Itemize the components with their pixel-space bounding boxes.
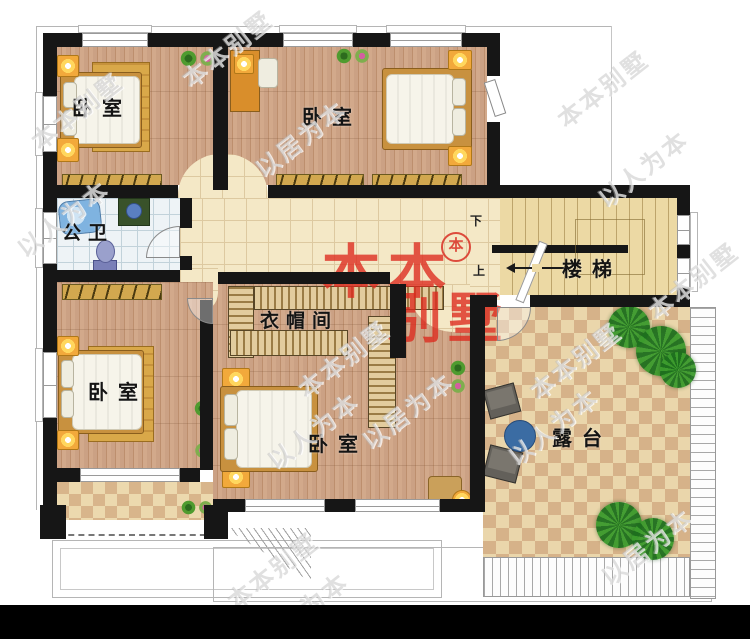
pillow (61, 390, 74, 418)
terrace-table (504, 420, 536, 452)
window-sill (35, 208, 43, 268)
exterior-outline (611, 26, 612, 188)
room-label-closet: 衣帽间 (260, 306, 338, 333)
plant-icon (450, 360, 466, 376)
floor-plan: 本本 别墅 本 卧室 卧室 公卫 楼 (0, 0, 750, 639)
window (43, 96, 57, 152)
window (80, 468, 180, 482)
window-sill (78, 25, 152, 33)
window-sill (35, 92, 43, 156)
nightstand-lamp (57, 336, 79, 356)
plant-icon (181, 500, 196, 515)
wall (487, 185, 690, 198)
room-label-bedroom-top-left: 卧室 (72, 92, 132, 121)
room-label-terrace: 露台 (552, 422, 612, 451)
window-sill (690, 212, 698, 292)
room-label-bedroom-top-right: 卧室 (302, 101, 362, 130)
window-sill (279, 25, 357, 33)
room-label-bedroom-bottom-middle: 卧室 (308, 428, 368, 457)
flower-icon (354, 48, 370, 64)
potted-palm (660, 352, 696, 388)
bay-window-band (62, 284, 162, 300)
window-sill (35, 348, 43, 422)
nightstand-lamp (448, 146, 472, 166)
caption-bar: 本图编号:A001 版权所有,盗图必究 （湘作登字2016-L-2015） 18… (0, 605, 750, 639)
stairs-arrow-dash-gap (532, 264, 542, 272)
nightstand-lamp (57, 430, 79, 450)
pillow (224, 428, 238, 460)
balcony-post (40, 505, 66, 539)
wall (470, 307, 485, 512)
pillow (61, 360, 74, 388)
window (390, 33, 462, 47)
pillow (224, 394, 238, 426)
stairs-down-label: 下 (470, 212, 482, 229)
dresser-lamp (234, 54, 254, 74)
potted-palm (632, 518, 674, 560)
window (43, 212, 57, 264)
stairs-up-label: 上 (473, 262, 485, 279)
nightstand-lamp (57, 55, 79, 77)
stairs-arrowhead-icon (506, 263, 515, 273)
sink (126, 203, 142, 219)
window (43, 352, 57, 418)
watermark-text: 本本别墅 (549, 40, 656, 134)
room-label-bathroom: 公卫 (62, 218, 114, 245)
wall (43, 270, 180, 282)
balcony-dashed-line (48, 534, 216, 536)
seat (258, 58, 278, 88)
brand-stamp-icon: 本 (441, 232, 471, 262)
wall (213, 47, 228, 190)
plant-icon (336, 48, 352, 64)
bed-duvet (236, 390, 312, 468)
wall (180, 198, 192, 228)
window-sill (386, 25, 466, 33)
stamp-char: 本 (448, 236, 463, 254)
flower-icon (450, 378, 466, 394)
wall (180, 256, 192, 270)
nightstand-lamp (448, 50, 472, 70)
pillow (452, 108, 466, 136)
window (82, 33, 148, 47)
wall (200, 300, 213, 470)
wall (470, 295, 497, 307)
window (677, 258, 690, 288)
window (283, 33, 353, 47)
plant-icon (180, 50, 197, 67)
pillow (452, 78, 466, 106)
terrace-bottom-railing (483, 557, 690, 597)
wall (390, 284, 406, 358)
wall (57, 185, 178, 198)
balcony-post (204, 505, 228, 539)
wall (218, 272, 390, 284)
window (677, 215, 690, 245)
wall (487, 47, 500, 198)
wall (530, 295, 690, 307)
wardrobe (230, 330, 348, 356)
window (245, 499, 325, 512)
room-label-stairs: 楼梯 (562, 253, 622, 282)
room-label-bedroom-bottom-left: 卧室 (88, 376, 148, 405)
terrace-right-railing (690, 307, 716, 599)
nightstand-lamp (57, 138, 79, 162)
window (355, 499, 440, 512)
bed-duvet (386, 74, 454, 144)
wall (268, 185, 487, 198)
